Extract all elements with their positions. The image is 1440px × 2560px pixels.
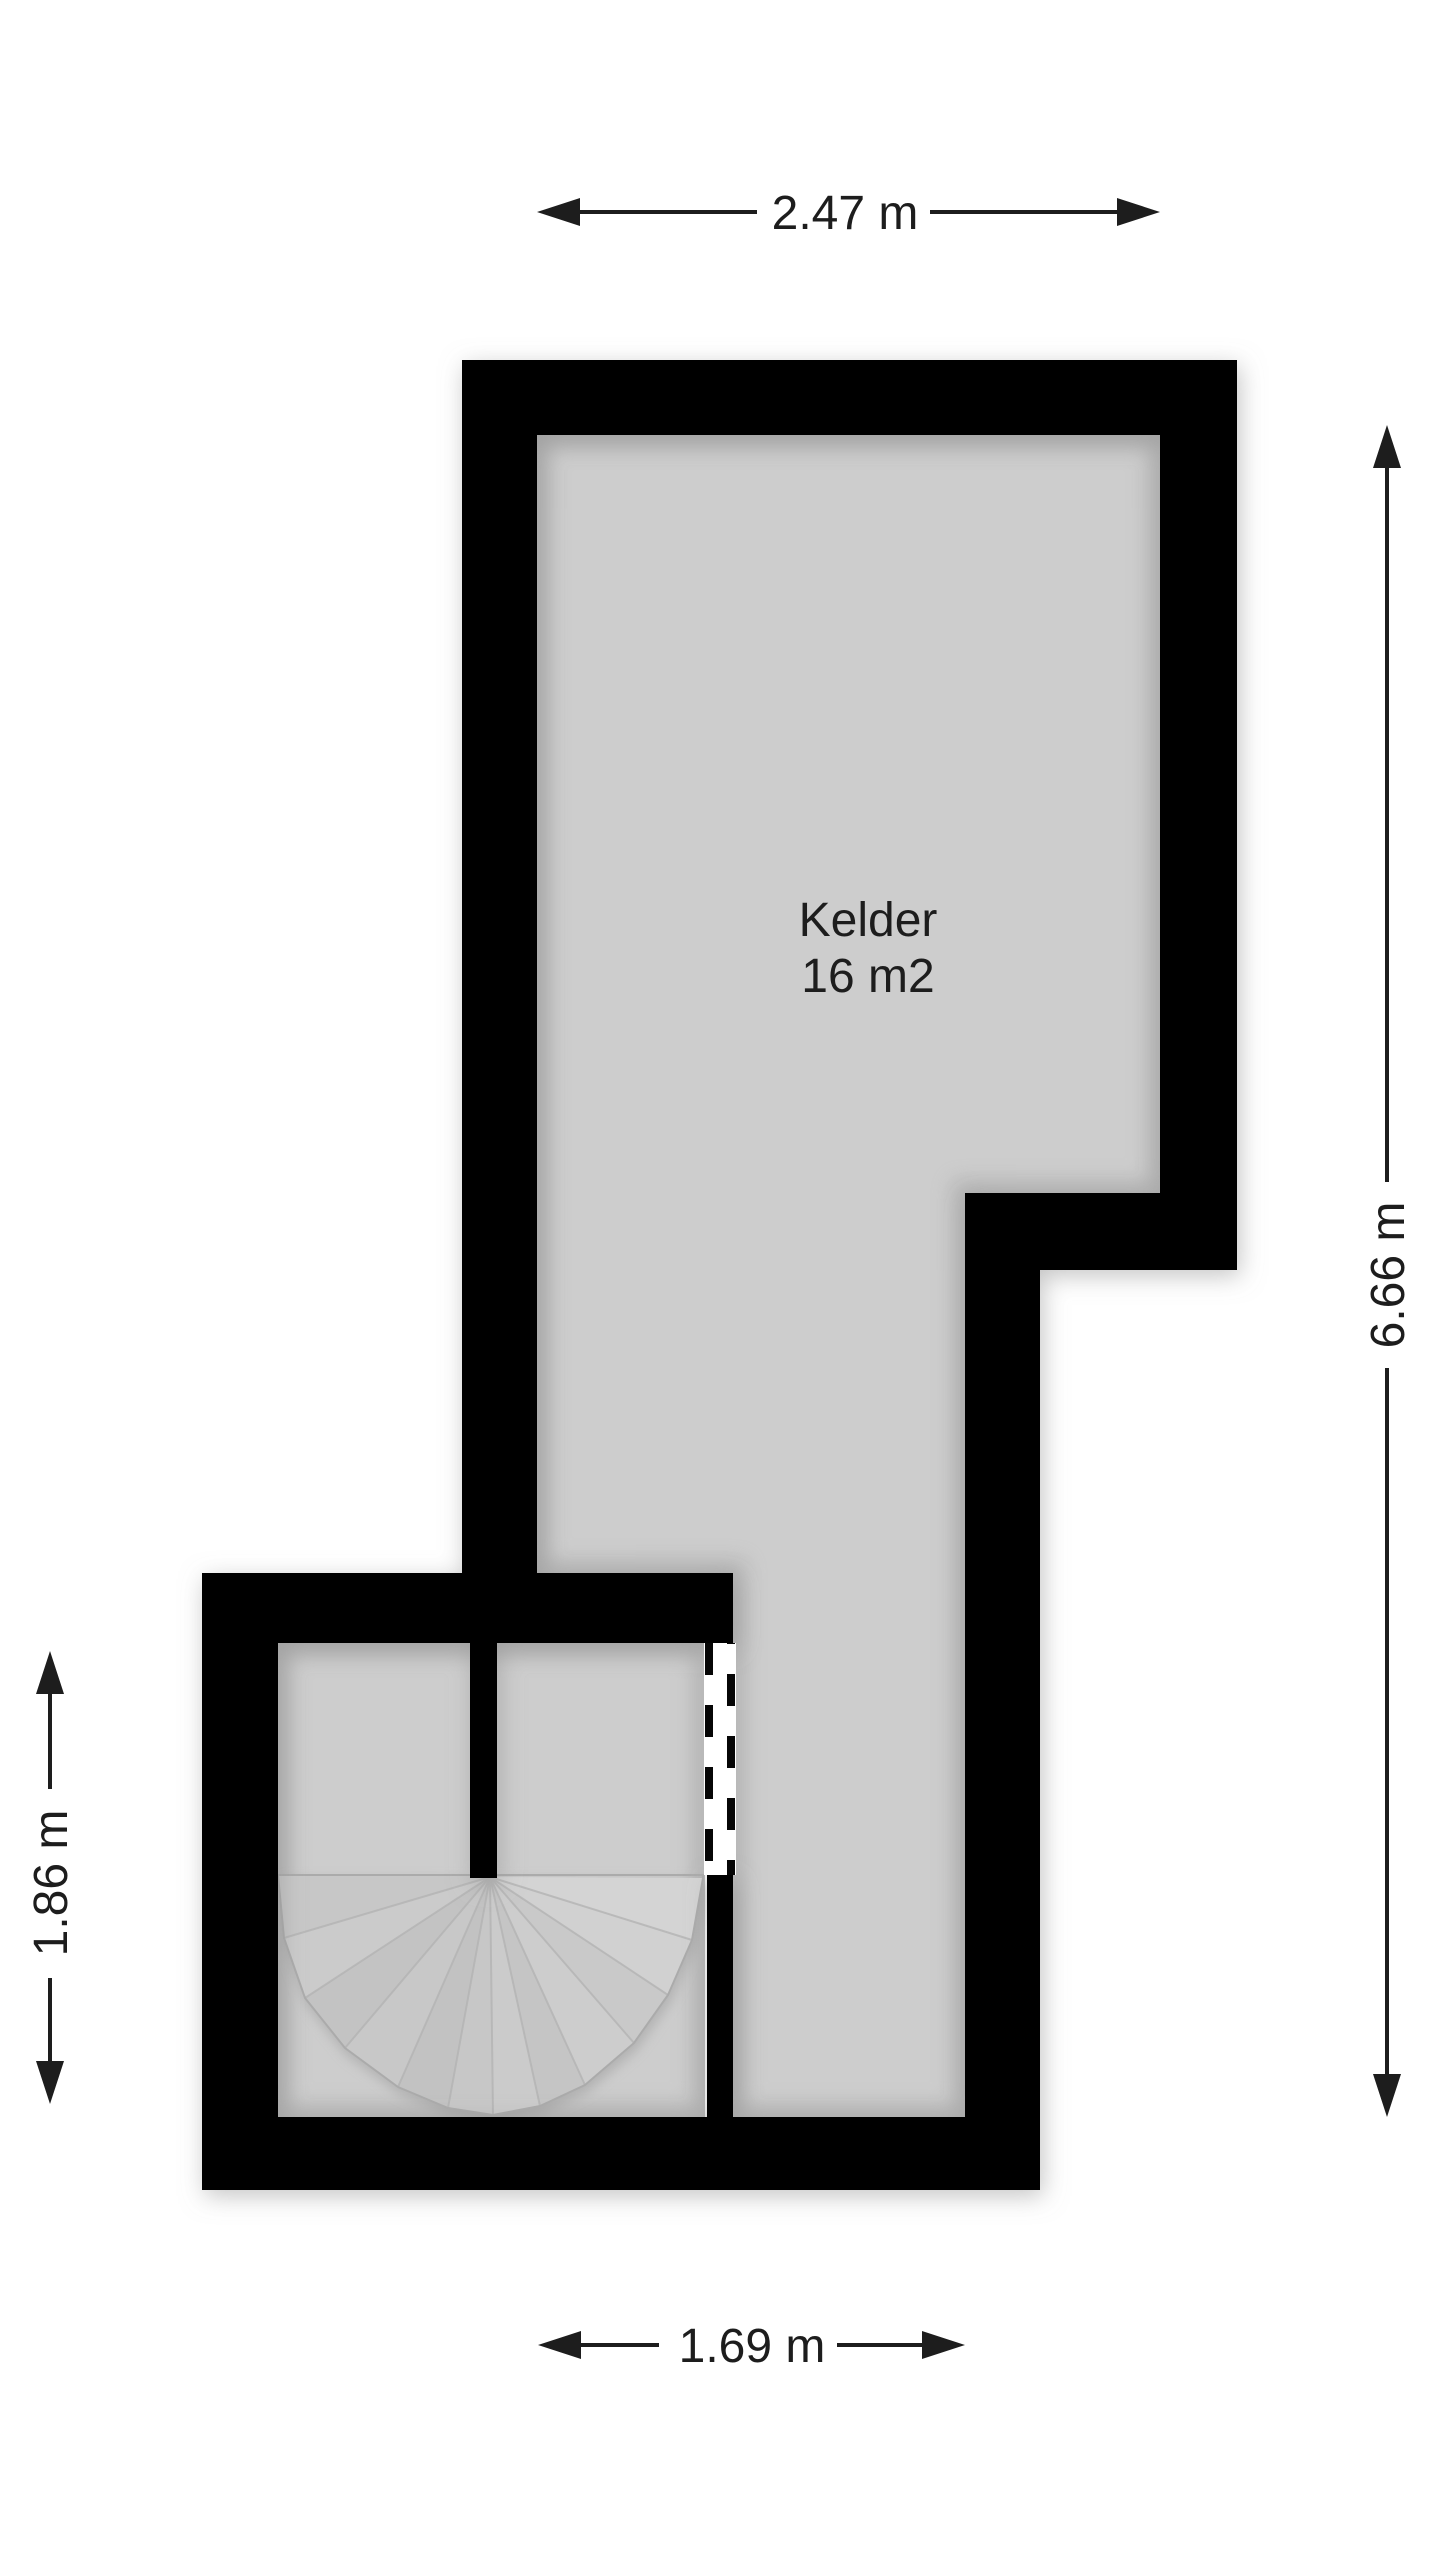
room-name: Kelder xyxy=(799,894,938,947)
wall-annex-left xyxy=(202,1573,278,2190)
wall-annex-top xyxy=(202,1573,733,1643)
dimension-left-label: 1.86 m xyxy=(25,1810,78,1957)
wall-stair-stub xyxy=(470,1643,497,1878)
dimension-top-label: 2.47 m xyxy=(772,187,919,240)
wall-bottom xyxy=(202,2117,1040,2190)
floor-plan-page: Kelder 16 m2 2.47 m 6.66 m 1.86 m xyxy=(0,0,1440,2560)
floor-plan-svg: Kelder 16 m2 2.47 m 6.66 m 1.86 m xyxy=(0,0,1440,2560)
wall-divider-lower xyxy=(707,1875,733,2125)
door-opening xyxy=(704,1643,736,1875)
wall-top xyxy=(462,360,1237,435)
wall-left xyxy=(462,360,537,1643)
wall-right-lower xyxy=(965,1193,1040,2190)
dimension-right-label: 6.66 m xyxy=(1362,1202,1415,1349)
room-area: 16 m2 xyxy=(801,950,934,1003)
wall-right xyxy=(1160,360,1237,1270)
dimension-bottom-label: 1.69 m xyxy=(679,2320,826,2373)
